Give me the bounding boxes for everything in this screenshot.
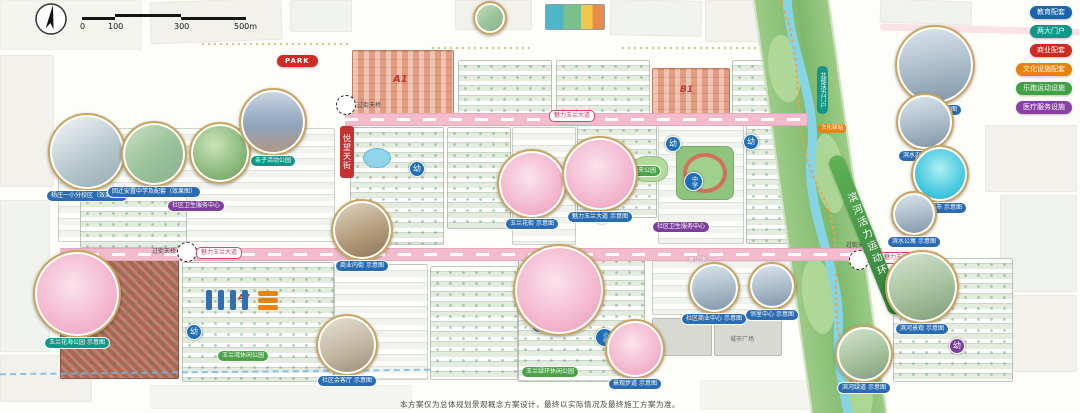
legend-item-culture: 文化设施配套 [1016, 63, 1072, 76]
callout-school-photo: 杨庄一小分校区（效果图） [48, 113, 126, 191]
scale-segment [181, 17, 246, 20]
callout-greenway-photo: 滨河绿道 示意图 [835, 325, 893, 383]
callout-waterfront-office-photo: 滨水办公 示意图 [896, 93, 954, 151]
callout-caption: 社区会客厅 示意图 [318, 376, 376, 386]
plan-tag [242, 290, 248, 310]
legend-item-education: 教育配套 [1030, 6, 1072, 19]
park-badge: PARK [277, 55, 318, 67]
scale-tick: 100 [108, 22, 123, 31]
legend-item-medical: 医疗服务设施 [1016, 101, 1072, 114]
callout-caption: 滨河景观 示意图 [896, 324, 948, 334]
legend-item-gateways: 两大门户 [1030, 25, 1072, 38]
callout-blossom-photo [513, 244, 605, 336]
callout-caption: 景观步道 示意图 [609, 379, 661, 389]
callout-caption: 回迁安置中学及配套（效果图） [108, 187, 200, 197]
kindergarten-marker: 幼 [409, 161, 425, 177]
context-block [610, 0, 703, 37]
callout-apartment-photo: 滨水公寓 示意图 [891, 191, 937, 237]
plan-tag [258, 298, 278, 303]
scale-bar: 0 100 300 500m [82, 13, 252, 35]
callout-caption: 滨水公寓 示意图 [888, 237, 940, 247]
callout-lounge-photo: 社区会客厅 示意图 [316, 314, 378, 376]
middle-school-marker: 中学 [684, 172, 703, 191]
scale-segment [82, 17, 115, 20]
health-center-label: 社区卫生服务中心 [168, 201, 224, 211]
context-block [0, 55, 54, 187]
culture-station-label: 文化驿站 [818, 124, 846, 133]
context-block [985, 125, 1077, 192]
callout-caption: 魅力玉兰大道 示意图 [568, 212, 632, 222]
kindergarten-marker: 幼 [743, 134, 759, 150]
plan-tag [218, 290, 224, 310]
school-campus-block [545, 4, 605, 30]
callout-commercial-photo: 社区商业中心 示意图 [688, 262, 740, 314]
callout-tower-photo: 亲子活动公园 [239, 88, 307, 156]
callout-caption: 亲子活动公园 [251, 156, 295, 166]
street-banner: 悦望天街 [340, 126, 354, 178]
parcel-residential [430, 266, 518, 380]
disclaimer-text: 本方案仅为总体规划景观概念方案设计，最终以实际情况及最终施工方案为准。 [0, 399, 1080, 410]
hedge-row [620, 46, 770, 50]
kindergarten-marker: 幼 [665, 136, 681, 152]
callout-caption: 社区商业中心 示意图 [682, 314, 746, 324]
sports-track [676, 146, 734, 200]
scale-tick: 0 [80, 22, 85, 31]
road-label-yulan: 魅力玉兰大道 [549, 110, 595, 122]
parcel-label-a1: A1 [393, 74, 408, 85]
compass-icon [34, 2, 68, 40]
parcel-residential [556, 60, 650, 116]
callout-caption: 商业内街 示意图 [336, 261, 388, 271]
plan-tag [206, 290, 212, 310]
kindergarten-marker: 幼 [949, 338, 965, 354]
plaza-label: 城市广场 [730, 334, 754, 343]
bridge-junction [336, 95, 356, 115]
callout-riverside-photo: 滨河景观 示意图 [885, 250, 959, 324]
callout-street-photo: 商业内街 示意图 [331, 199, 393, 261]
park-label-yulanwan: 玉兰湾休闲公园 [218, 351, 268, 361]
park-label-green-ring: 玉兰绿环休闲公园 [522, 367, 578, 377]
bridge-label: 过街天桥 [357, 100, 381, 109]
context-block [290, 0, 352, 32]
road-label-yulan: 魅力玉兰大道 [196, 247, 242, 259]
callout-avenue-photo: 魅力玉兰大道 示意图 [562, 136, 638, 212]
scale-tick: 300 [174, 22, 189, 31]
scale-tick: 500m [234, 22, 257, 31]
road-label-bowang: 博望路 [688, 255, 706, 264]
parcel-label-b1: B1 [680, 85, 693, 95]
masterplan-map: 过街天桥 过街天桥 过街天桥 魅力玉兰大道 魅力玉兰大道 魅力玉兰大道 博望路 … [0, 0, 1080, 413]
bridge-label: 过街天桥 [152, 246, 176, 255]
callout-caption: 玉兰花海公园 示意图 [45, 338, 109, 348]
callout-path-photo: 景观步道 示意图 [605, 319, 665, 379]
bridge-junction [177, 242, 197, 262]
health-center-label: 社区卫生服务中心 [653, 222, 709, 232]
callout-flower-park-photo: 玉兰花海公园 示意图 [33, 250, 121, 338]
parcel-residential [458, 60, 552, 118]
scale-segment [115, 14, 181, 17]
hedge-row [200, 42, 350, 46]
legend-item-sports: 乐跑运动设施 [1016, 82, 1072, 95]
legend-item-commercial: 商业配套 [1030, 44, 1072, 57]
legend: 教育配套 两大门户 商业配套 文化设施配套 乐跑运动设施 医疗服务设施 [1016, 6, 1072, 114]
callout-neighborhood-photo: 邻里中心 示意图 [748, 262, 796, 310]
callout-aerial-photo: 回迁安置中学及配套（效果图） [121, 121, 187, 187]
callout-caption: 滨河绿道 示意图 [838, 383, 890, 393]
callout-small-aerial [473, 1, 507, 35]
pond [363, 148, 391, 168]
callout-waterfront-commercial-photo: 滨水商业 示意图 [895, 25, 975, 105]
kindergarten-marker: 幼 [186, 324, 202, 340]
plan-tag [258, 291, 278, 296]
plan-tag [230, 290, 236, 310]
plan-tag [258, 305, 278, 310]
callout-caption: 玉兰花街 示意图 [506, 219, 558, 229]
north-gateway-banner: 北部活力门户 [817, 66, 828, 114]
parcel-a7 [182, 262, 334, 382]
context-block [880, 0, 973, 26]
callout-caption: 邻里中心 示意图 [746, 310, 798, 320]
callout-blossom-photo: 玉兰花街 示意图 [497, 149, 567, 219]
